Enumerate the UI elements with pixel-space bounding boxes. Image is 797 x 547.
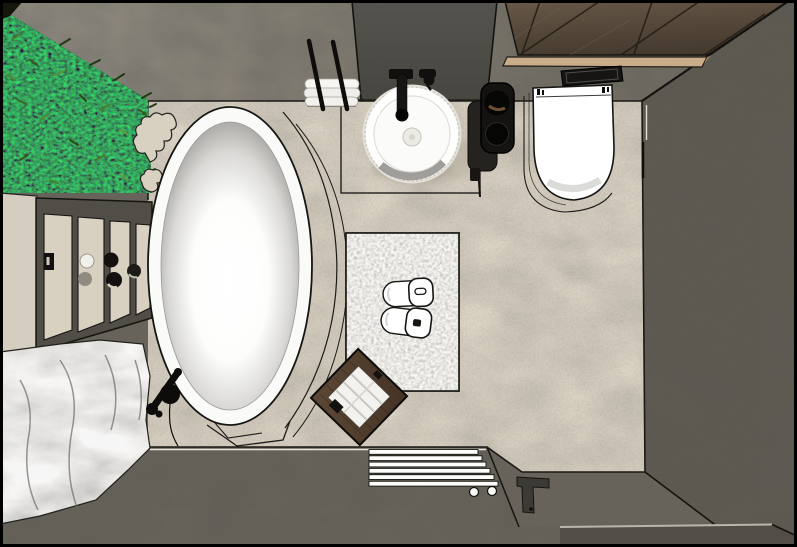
floor-object-dot [529, 507, 533, 511]
wood-trim [503, 55, 712, 67]
tub-basin [161, 122, 299, 410]
slipper-left [382, 278, 433, 309]
towel-rolls [304, 79, 360, 107]
bathroom-render-viewport [0, 0, 797, 547]
vessel-sink [364, 86, 460, 182]
toilet-body [533, 85, 614, 200]
storage-recess-bottom [486, 123, 509, 146]
storage-recess-top [485, 91, 510, 116]
stone-slab [0, 193, 37, 360]
scene [0, 0, 797, 547]
wall-bottom-dark [560, 525, 797, 547]
